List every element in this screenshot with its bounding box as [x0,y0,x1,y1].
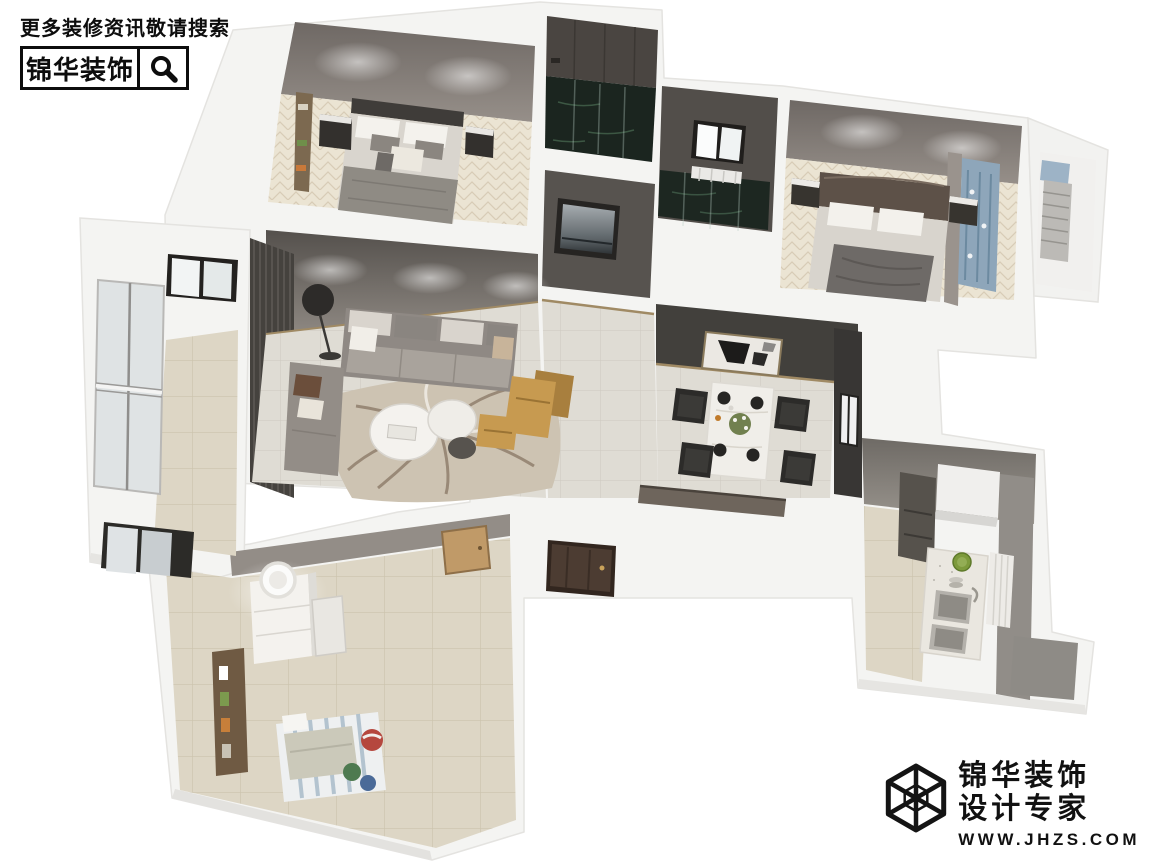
brand-search-box: 锦华装饰 [20,46,189,90]
nightstand-right [465,126,494,158]
bedroom-right [780,100,1022,306]
dining-window [840,394,858,446]
double-bed [337,98,464,224]
search-icon [137,49,186,87]
tall-window [94,280,164,494]
single-bed [276,712,386,802]
brand-name: 锦华装饰 [23,49,137,87]
living-room [250,230,574,502]
bathroom-master [545,16,658,162]
footer-website: WWW.JHZS.COM [958,830,1140,850]
poster-canvas: 更多装修资讯敬请搜索 锦华装饰 锦华装饰 设计专家 WWW.JHZS.COM [0,0,1158,868]
kitchen-curtain [986,552,1014,628]
vanity-stool [312,596,346,656]
nightstand-right [949,196,978,226]
footer-subtitle: 设计专家 [958,793,1140,826]
dining-art [702,332,782,376]
wall-art [554,198,620,260]
utility-nook [1010,636,1078,700]
skylight-window [166,254,238,302]
right-balcony [1036,152,1096,292]
search-tagline: 更多装修资讯敬请搜索 [20,12,230,41]
counter [920,548,988,660]
entry-door [546,540,616,597]
footer-brand: 锦华装饰 [958,760,1140,793]
wireframe-cube-icon [884,762,948,839]
floorplan-render [0,0,1158,868]
chaise-sofa [284,362,344,476]
header-watermark: 更多装修资讯敬请搜索 锦华装饰 [20,12,230,90]
hall-feature-wall [542,170,655,298]
dining-room [638,304,862,517]
blue-curtain [958,158,1000,292]
book-shelf [212,648,248,776]
nightstand-left [319,114,352,150]
bathroom-second [658,86,778,232]
dining-table [704,382,774,480]
room-door [442,526,490,574]
nightstand-left [791,178,820,208]
range-hood [934,464,1000,527]
footer-logo: 锦华装饰 设计专家 WWW.JHZS.COM [884,760,1140,850]
window [691,120,746,164]
double-bed [808,172,950,302]
coffee-tables [370,400,476,460]
bedroom-topleft [268,22,535,226]
radiator [1040,180,1072,262]
